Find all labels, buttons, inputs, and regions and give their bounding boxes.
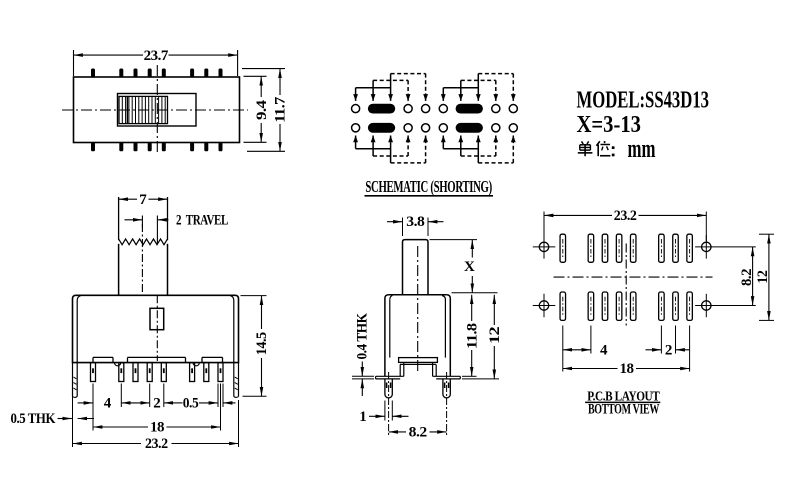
- svg-text:MODEL:SS43D13: MODEL:SS43D13: [577, 87, 710, 114]
- svg-text:2 TRAVEL: 2 TRAVEL: [176, 212, 228, 228]
- svg-text:mm: mm: [628, 134, 656, 163]
- svg-text:2: 2: [665, 342, 672, 358]
- svg-text:11.7: 11.7: [273, 96, 289, 123]
- svg-text:1: 1: [359, 409, 366, 425]
- svg-text:8.2: 8.2: [739, 269, 755, 286]
- svg-text:14.5: 14.5: [254, 332, 270, 355]
- svg-text:4: 4: [600, 342, 608, 358]
- svg-text:7: 7: [139, 192, 147, 208]
- svg-text:BOTTOM VIEW: BOTTOM VIEW: [588, 402, 659, 418]
- svg-text:0.5 THK: 0.5 THK: [11, 411, 56, 427]
- svg-text:8.2: 8.2: [409, 424, 427, 440]
- svg-text:0.5: 0.5: [183, 395, 199, 411]
- svg-text:12: 12: [487, 327, 503, 344]
- svg-text:11.8: 11.8: [464, 323, 480, 349]
- svg-text:2: 2: [153, 395, 160, 411]
- svg-text:12: 12: [755, 271, 771, 284]
- svg-text:X: X: [464, 259, 475, 275]
- svg-text:18: 18: [620, 361, 634, 377]
- svg-text:0.4 THK: 0.4 THK: [355, 313, 371, 360]
- svg-text:3.8: 3.8: [406, 214, 424, 230]
- svg-text:18: 18: [150, 420, 164, 436]
- svg-text:SCHEMATIC (SHORTING): SCHEMATIC (SHORTING): [365, 177, 492, 196]
- svg-text:23.2: 23.2: [145, 436, 168, 452]
- svg-text:9.4: 9.4: [254, 99, 270, 120]
- svg-text:23.7: 23.7: [144, 48, 169, 64]
- svg-text:23.2: 23.2: [614, 208, 637, 224]
- svg-text:4: 4: [104, 395, 112, 411]
